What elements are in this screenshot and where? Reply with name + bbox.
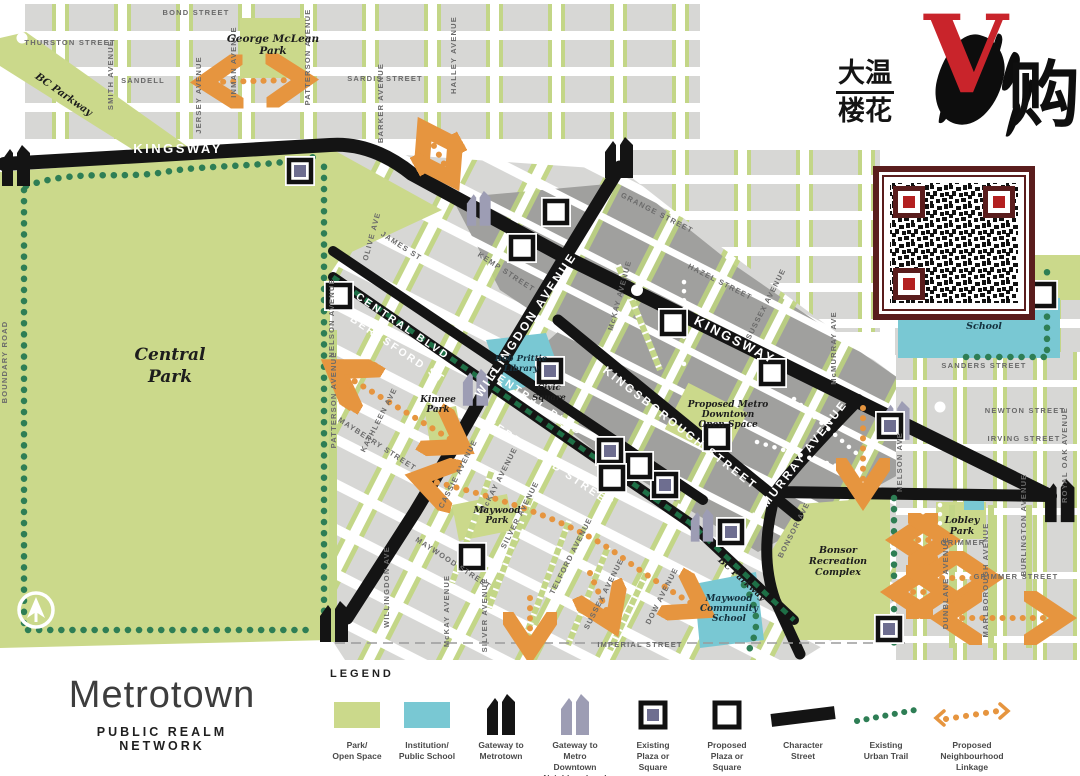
legend-label: Existing [869,740,902,750]
brand-logo: V 大温 楼花 购 [828,6,1080,158]
proposed-plaza-icon [711,699,743,731]
page-subtitle: PUBLIC REALM NETWORK [52,725,272,753]
street-label-patterson-n: PATTERSON AVENUE [303,9,312,106]
legend-label: Public School [399,751,455,761]
street-label-royal-oak: ROYAL OAK AVENUE [1060,407,1069,503]
legend-item-character-street: CharacterStreet [760,694,846,762]
street-label-mckay-s: McKAY AVENUE [442,575,451,647]
park-label-lobley-1: Lobley [944,515,981,526]
street-label-newton: NEWTON STREET [985,406,1065,415]
urban-trail-icon [851,701,921,729]
street-label-bond: BOND STREET [163,8,230,17]
street-label-marlborough: MARLBOROUGH AVENUE [981,523,990,638]
legend-label: Institution/ [405,740,448,750]
label-civic-2: Square [532,393,566,403]
park-label-bonsor-3: Complex [815,567,861,578]
character-street-icon [767,700,839,730]
park-label-maywood-1: Maywood [472,506,521,516]
street-label-thurston: THURSTON STREET [24,38,115,47]
legend-label: Gateway to [478,740,523,750]
existing-plaza-icon [637,699,669,731]
legend-label: Metro [563,751,586,761]
metrotown-public-realm-poster: BOND STREET THURSTON STREET SANDELL SMIT… [0,0,1080,776]
label-elementary-2: School [966,321,1002,332]
label-library-2: Library [503,364,540,374]
street-label-dunblane: DUNBLANE AVENUE [941,537,950,630]
legend-label: Proposed [707,740,746,750]
legend-label: Plaza or [637,751,670,761]
brand-line2: 楼花 [834,96,896,127]
park-label-kinnee-1: Kinnee [419,395,456,405]
brand-line1: 大温 [834,58,896,89]
institution-swatch [404,702,450,728]
legend-label: Linkage [956,762,988,772]
street-label-jersey: JERSEY AVENUE [194,56,203,134]
park-label-maywood-2: Park [484,516,508,526]
legend-item-existing-trail: ExistingUrban Trail [846,694,926,762]
street-label-sardis: SARDIS STREET [347,74,423,83]
legend-item-institution: Institution/Public School [388,694,466,762]
label-maywood-school-3: School [712,614,747,624]
title-block: Metrotown PUBLIC REALM NETWORK [52,674,272,753]
legend-item-park: Park/Open Space [318,694,396,762]
label-maywood-school-2: Community [700,604,759,614]
park-label-bonsor-1: Bonsor [818,545,858,556]
legend-label: Street [791,751,815,761]
park-swatch [334,702,380,728]
park-label-central-2: Park [147,367,192,387]
brand-rule [836,91,894,94]
legend-label: Park/ [347,740,368,750]
street-label-barker: BARKER AVENUE [376,63,385,143]
street-label-willingdon-s: WILLINGDON AVE [382,546,391,628]
label-library-1: Bob Prittie [494,354,548,364]
gateway-black-icon [485,693,517,737]
street-label-sandell: SANDELL [121,76,165,85]
legend-item-proposed-plaza: ProposedPlaza orSquare [688,694,766,773]
legend-label: Proposed [952,740,991,750]
gateway-gray-icon [559,693,591,737]
label-open-space-2: Downtown [701,410,755,420]
legend: LEGEND Park/Open Space Institution/Publi… [318,660,1080,776]
park-label-kinnee-2: Park [425,405,449,415]
street-label-irving: IRVING STREET [988,434,1061,443]
legend-label: Metrotown [480,751,523,761]
park-label-lobley-2: Park [949,526,975,537]
street-label-burlington: BURLINGTON AVENUE [1019,474,1028,577]
legend-label: Square [713,762,742,772]
legend-label: Square [639,762,668,772]
footer: Metrotown PUBLIC REALM NETWORK LEGEND Pa… [0,660,1080,776]
linkage-icon [930,700,1014,730]
legend-item-gateway-metrotown: Gateway toMetrotown [462,694,540,762]
park-label-george-1: George McLean [227,33,319,45]
legend-item-gateway-downtown: Gateway toMetroDowntownNeighbourhood [536,694,614,776]
legend-item-existing-plaza: ExistingPlaza orSquare [614,694,692,773]
street-label-sanders: SANDERS STREET [941,361,1026,370]
legend-label: Existing [636,740,669,750]
street-label-nelson-e: NELSON AVE [895,432,904,492]
legend-label: Downtown [554,762,597,772]
brand-right-char: 购 [1008,36,1080,141]
street-label-boundary: BOUNDARY ROAD [0,321,9,404]
road-label-kingsway-w: KINGSWAY [133,141,223,156]
legend-heading: LEGEND [330,668,394,680]
street-label-patterson-s: PATTERSON AVENUE [329,352,338,449]
label-open-space-3: Open Space [698,420,758,430]
park-label-bonsor-2: Recreation [808,556,867,567]
legend-item-proposed-linkage: ProposedNeighbourhoodLinkage [926,694,1018,773]
page-title: Metrotown [52,674,272,717]
label-civic-1: Civic [537,383,561,393]
label-open-space-1: Proposed Metro [687,400,769,410]
legend-label: Gateway to [552,740,597,750]
street-label-mcmurray-small: McMURRAY AVE [829,311,838,385]
legend-label: Neighbourhood [940,751,1003,761]
street-label-silver-s: SILVER AVENUE [480,578,489,653]
park-label-george-2: Park [258,45,286,57]
legend-label: Plaza or [711,751,744,761]
label-maywood-school-1: Maywood [704,594,753,604]
brand-v: V [924,0,1008,118]
park-label-central-1: Central [135,345,207,365]
brand-cjk-column: 大温 楼花 [834,58,896,127]
street-label-halley: HALLEY AVENUE [449,16,458,94]
street-label-imperial: IMPERIAL STREET [597,640,682,649]
qr-code [873,166,1035,320]
street-label-smith: SMITH AVENUE [106,40,115,110]
legend-label: Urban Trail [864,751,908,761]
legend-label: Open Space [332,751,381,761]
street-label-nelson-w: NELSON AVENUE [327,278,336,357]
legend-label: Character [783,740,823,750]
